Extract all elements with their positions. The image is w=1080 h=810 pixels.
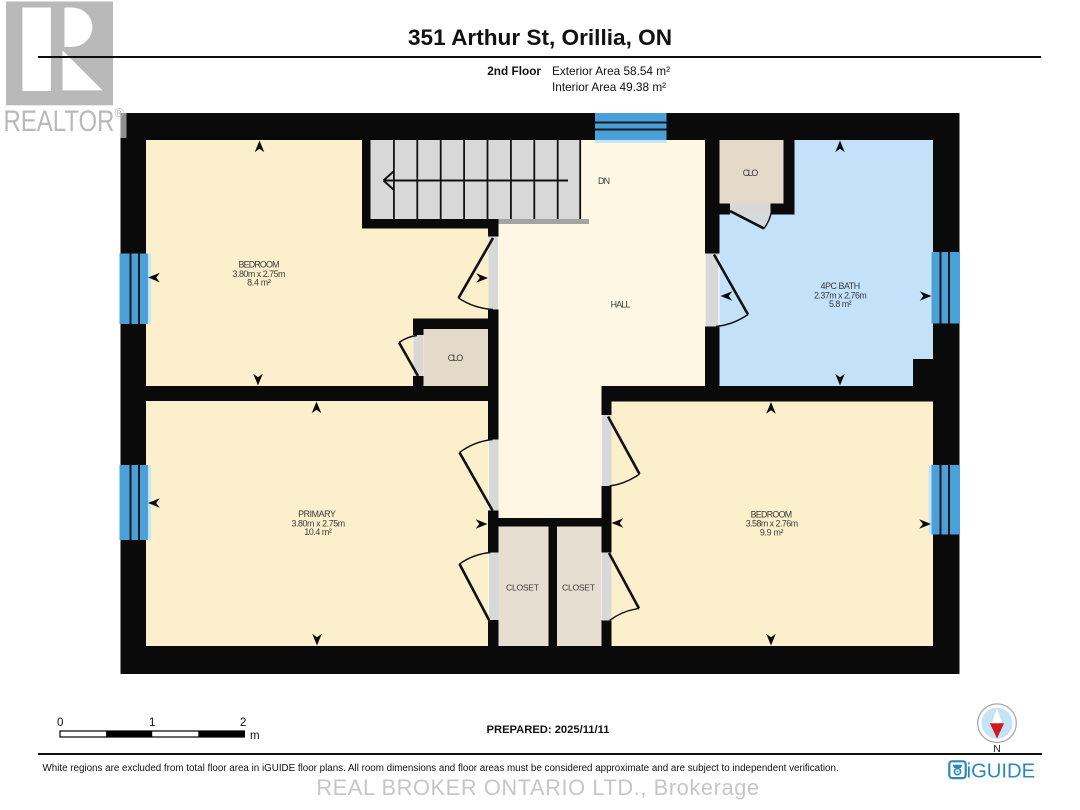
svg-text:9.9 m²: 9.9 m² [760,527,784,537]
svg-text:8.4 m²: 8.4 m² [247,278,271,288]
svg-text:CLO: CLO [743,168,759,178]
svg-text:CLOSET: CLOSET [506,583,540,593]
svg-text:5.8 m²: 5.8 m² [829,299,852,309]
svg-text:10.4 m²: 10.4 m² [304,527,332,537]
svg-text:CLOSET: CLOSET [562,583,596,593]
svg-text:4PC BATH: 4PC BATH [821,281,861,291]
svg-text:REALTOR: REALTOR [4,105,115,138]
svg-text:DN: DN [598,176,610,186]
svg-text:®: ® [115,106,125,120]
svg-text:HALL: HALL [611,300,631,310]
svg-text:CLO: CLO [448,353,464,363]
